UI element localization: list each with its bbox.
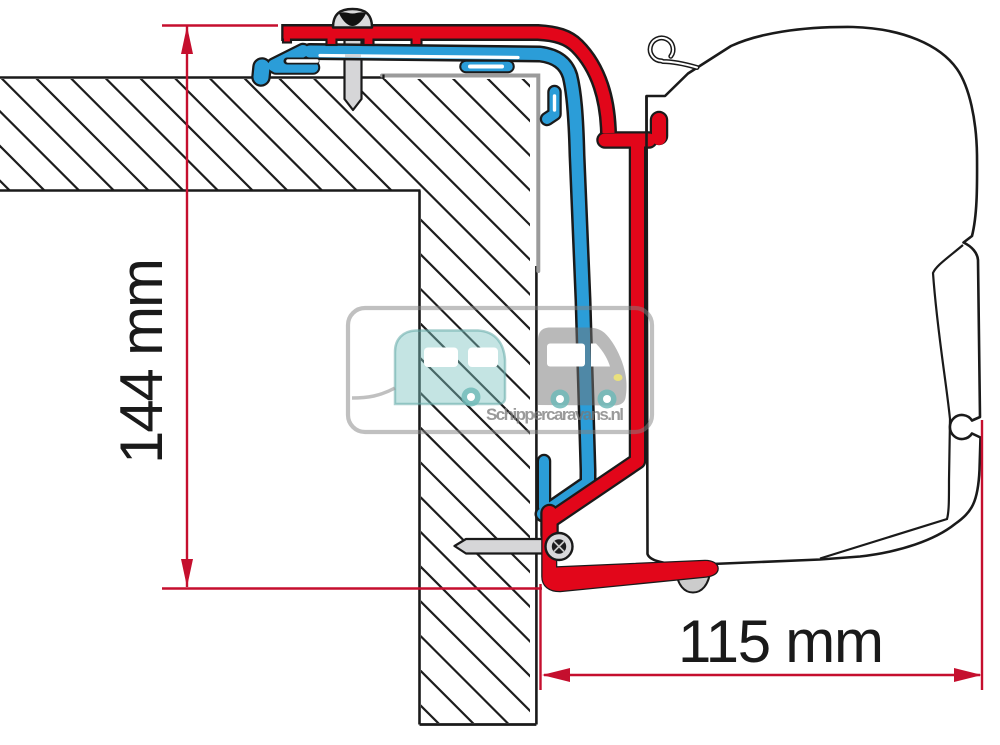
svg-text:144 mm: 144 mm — [108, 258, 175, 464]
svg-text:Schippercaravans.nl: Schippercaravans.nl — [486, 405, 624, 424]
svg-text:115 mm: 115 mm — [678, 608, 884, 675]
